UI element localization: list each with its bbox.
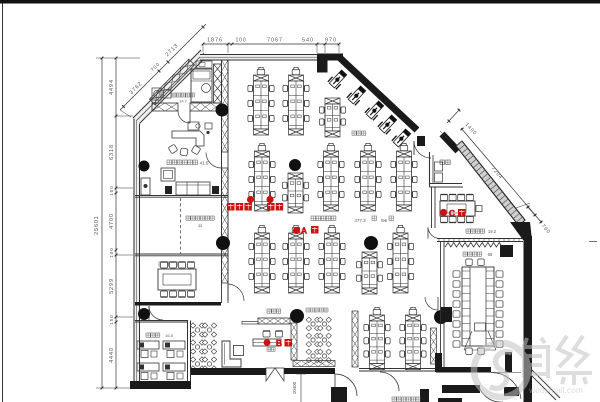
svg-text:377.3: 377.3 xyxy=(354,218,366,223)
svg-text:16.5: 16.5 xyxy=(165,333,174,338)
svg-text:14.7: 14.7 xyxy=(179,99,188,104)
svg-text:4700: 4700 xyxy=(109,213,115,229)
svg-text:150: 150 xyxy=(109,314,114,324)
svg-text:7067: 7067 xyxy=(267,38,283,44)
svg-text:B: B xyxy=(276,338,282,348)
svg-text:25601: 25601 xyxy=(94,215,100,235)
svg-text:19.2: 19.2 xyxy=(488,229,497,234)
svg-text:10400: 10400 xyxy=(292,381,297,394)
svg-text:woosmall.com: woosmall.com xyxy=(528,385,583,395)
svg-text:69: 69 xyxy=(488,252,493,257)
svg-text:33: 33 xyxy=(198,223,203,228)
svg-text:100: 100 xyxy=(109,247,114,257)
svg-text:540: 540 xyxy=(302,38,314,44)
svg-text:1876: 1876 xyxy=(207,38,223,44)
svg-text:C: C xyxy=(449,208,455,218)
svg-text:/96: /96 xyxy=(381,218,388,223)
svg-text:4440: 4440 xyxy=(109,347,115,363)
svg-text:4494: 4494 xyxy=(109,79,115,95)
svg-text:41.5: 41.5 xyxy=(200,161,209,166)
svg-text:6318: 6318 xyxy=(109,144,115,160)
svg-text:A: A xyxy=(301,226,307,236)
svg-text:100: 100 xyxy=(109,185,114,195)
svg-text:5299: 5299 xyxy=(109,278,115,294)
svg-text:970: 970 xyxy=(325,38,337,44)
svg-text:100: 100 xyxy=(235,38,246,44)
